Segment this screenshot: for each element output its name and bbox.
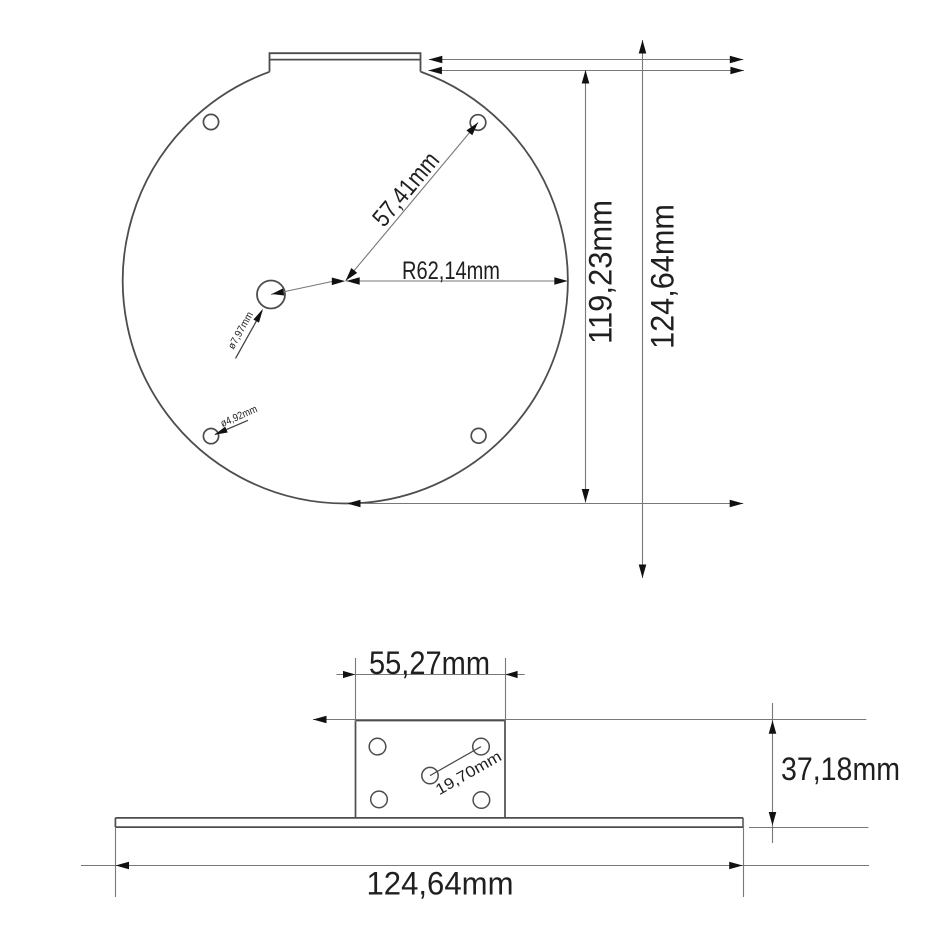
svg-text:57,41mm: 57,41mm xyxy=(367,147,445,232)
svg-text:ø4,92mm: ø4,92mm xyxy=(219,403,260,430)
svg-text:37,18mm: 37,18mm xyxy=(781,751,900,787)
svg-text:124,64mm: 124,64mm xyxy=(367,866,514,902)
svg-text:19,70mm: 19,70mm xyxy=(433,748,505,799)
svg-text:124,64mm: 124,64mm xyxy=(645,204,681,349)
svg-text:R62,14mm: R62,14mm xyxy=(402,257,500,285)
svg-text:55,27mm: 55,27mm xyxy=(369,645,490,681)
svg-text:119,23mm: 119,23mm xyxy=(583,200,619,344)
